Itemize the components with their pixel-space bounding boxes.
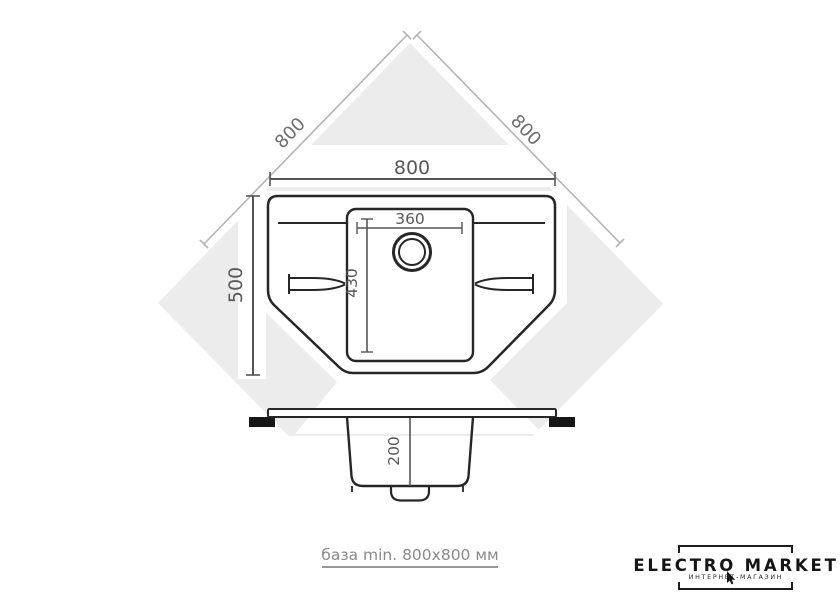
width-800-label: 800: [394, 157, 430, 179]
logo-title: ELECTRO MARKET: [633, 556, 838, 575]
lower-white-area: [0, 436, 840, 607]
mounting-clip-left: [249, 417, 275, 427]
logo-subtitle: ИНТЕРНЕТ-МАГАЗИН: [689, 574, 783, 581]
depth-500-label: 500: [225, 267, 247, 303]
bowl-200-label: 200: [385, 436, 403, 466]
drawing-page: 800 800 800 500: [0, 0, 840, 607]
sink-dimension-drawing: 800 800 800 500: [0, 0, 840, 607]
rim: [268, 409, 556, 417]
footer: база min. 800x800 мм: [321, 546, 498, 567]
mounting-clip-right: [549, 417, 575, 427]
bowl-430-label: 430: [343, 268, 361, 298]
bowl-360-label: 360: [395, 210, 425, 228]
footer-note: база min. 800x800 мм: [321, 546, 498, 564]
diagonal-right-label: 800: [506, 111, 545, 150]
